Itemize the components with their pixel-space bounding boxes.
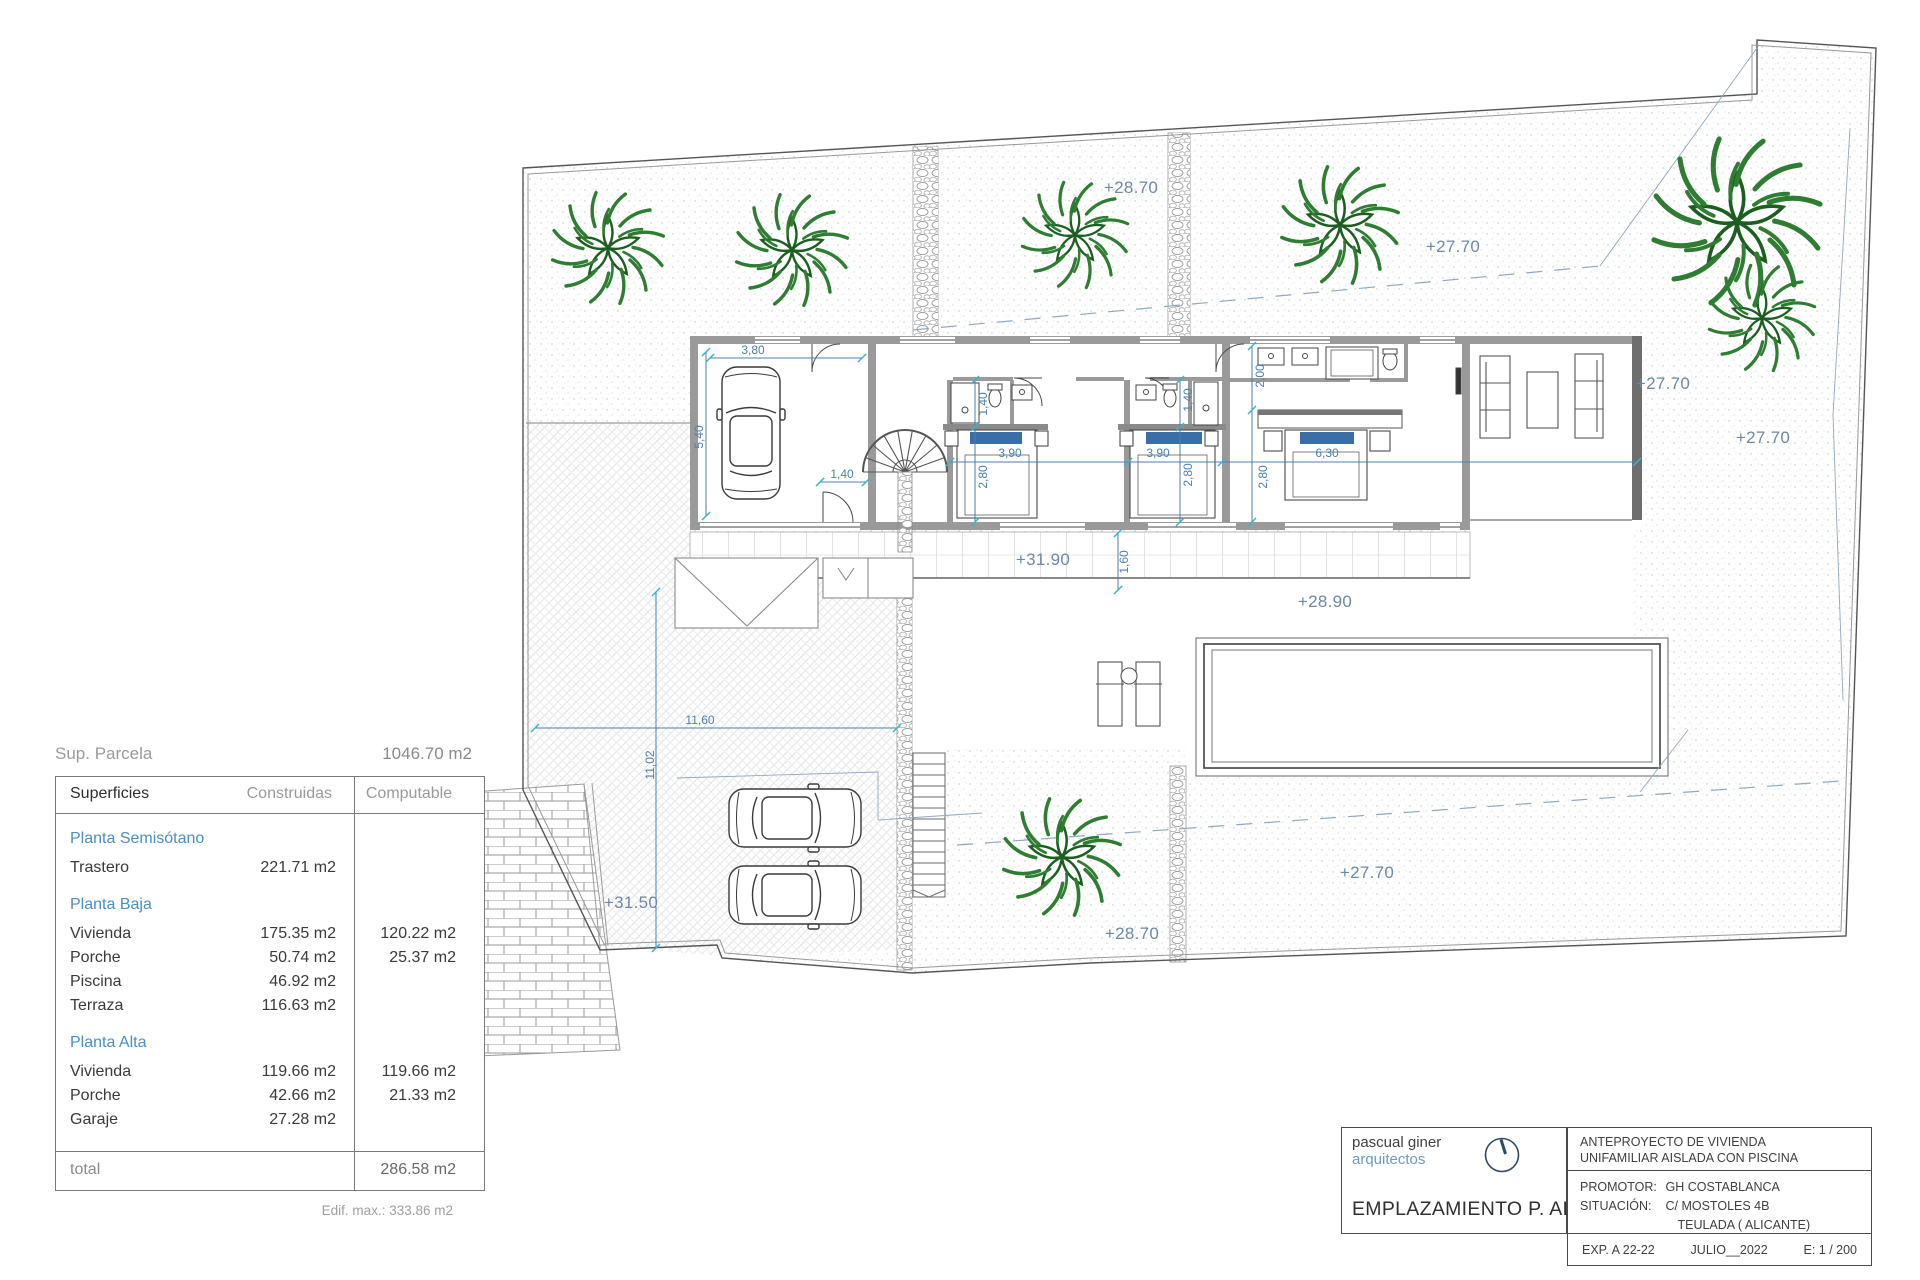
drawing-title: EMPLAZAMIENTO P. ALTA xyxy=(1352,1198,1596,1221)
table-row: Piscina46.92 m2 xyxy=(56,970,484,994)
car-symbol xyxy=(729,861,861,929)
dimension-label: 11,02 xyxy=(643,750,657,779)
surfaces-table-body: Planta SemisótanoTrastero221.71 m2Planta… xyxy=(56,814,484,1132)
table-section-title: Planta Baja xyxy=(70,894,484,916)
col-construidas: Construidas xyxy=(247,785,332,803)
row-name: Vivienda xyxy=(70,1063,131,1081)
dimension-label: 6,30 xyxy=(1315,446,1338,460)
elevation-label: +27.70 xyxy=(1736,428,1790,448)
dimension-label: 11,60 xyxy=(685,713,714,727)
firm-name-block: pascual giner arquitectos xyxy=(1352,1134,1441,1168)
row-computable: 120.22 m2 xyxy=(380,925,456,943)
north-arrow-icon xyxy=(1483,1136,1521,1174)
total-label: total xyxy=(70,1161,100,1179)
promotor-value: GH COSTABLANCA xyxy=(1665,1180,1779,1194)
surfaces-table-header: Superficies Construidas Computable xyxy=(56,777,484,814)
table-row: Porche50.74 m225.37 m2 xyxy=(56,946,484,970)
row-name: Vivienda xyxy=(70,925,131,943)
project-line2: UNIFAMILIAR AISLADA CON PISCINA xyxy=(1580,1150,1871,1166)
parcel-summary-value: 1046.70 m2 xyxy=(382,744,472,764)
expediente: EXP. A 22-22 xyxy=(1582,1243,1655,1257)
row-name: Piscina xyxy=(70,973,122,991)
firm-name: pascual giner xyxy=(1352,1134,1441,1151)
row-computable: 21.33 m2 xyxy=(389,1087,456,1105)
col-superficies: Superficies xyxy=(70,785,149,803)
promotor-row: PROMOTOR: GH COSTABLANCA xyxy=(1580,1178,1871,1197)
sheet-date: JULIO__2022 xyxy=(1691,1243,1768,1257)
row-construidas: 119.66 m2 xyxy=(262,1063,336,1081)
dimension-label: 3,90 xyxy=(998,446,1021,460)
row-name: Porche xyxy=(70,949,121,967)
situacion-value1: C/ MOSTOLES 4B xyxy=(1665,1199,1769,1213)
parcel-summary: Sup. Parcela 1046.70 m2 xyxy=(55,744,472,764)
elevation-label: +28.70 xyxy=(1104,178,1158,198)
table-row: Terraza116.63 m2 xyxy=(56,994,484,1018)
elevation-label: +27.70 xyxy=(1636,374,1690,394)
promotor-label: PROMOTOR: xyxy=(1580,1178,1662,1197)
row-construidas: 46.92 m2 xyxy=(269,973,336,991)
dimension-label: 3,80 xyxy=(741,343,764,357)
situacion-row2: TEULADA ( ALICANTE) xyxy=(1580,1216,1871,1235)
row-construidas: 42.66 m2 xyxy=(269,1087,336,1105)
row-name: Porche xyxy=(70,1087,121,1105)
dimension-label: 2,80 xyxy=(1181,463,1195,486)
row-name: Garaje xyxy=(70,1111,118,1129)
table-section-title: Planta Semisótano xyxy=(70,828,484,850)
dimension-label: 2,80 xyxy=(976,465,990,488)
parcel-summary-label: Sup. Parcela xyxy=(55,744,152,764)
dimension-label: 3,90 xyxy=(1146,446,1169,460)
project-details: PROMOTOR: GH COSTABLANCA SITUACIÓN: C/ M… xyxy=(1568,1171,1871,1234)
dimension-label: 1,40 xyxy=(830,467,853,481)
sheet-scale: E: 1 / 200 xyxy=(1803,1243,1857,1257)
table-row: Vivienda175.35 m2120.22 m2 xyxy=(56,922,484,946)
dimension-label: 1,40 xyxy=(1181,388,1195,411)
row-name: Trastero xyxy=(70,859,129,877)
total-value: 286.58 m2 xyxy=(380,1161,456,1179)
table-row: Garaje27.28 m2 xyxy=(56,1108,484,1132)
situacion-value2: TEULADA ( ALICANTE) xyxy=(1677,1218,1810,1232)
situacion-label: SITUACIÓN: xyxy=(1580,1197,1662,1216)
elevation-label: +31.50 xyxy=(604,893,658,913)
firm-subtitle: arquitectos xyxy=(1352,1151,1441,1168)
titleblock-left: pascual giner arquitectos EMPLAZAMIENTO … xyxy=(1341,1127,1567,1234)
row-construidas: 175.35 m2 xyxy=(260,925,336,943)
table-section-title: Planta Alta xyxy=(70,1032,484,1054)
dimension-label: 2,80 xyxy=(1256,465,1270,488)
titleblock-right: ANTEPROYECTO DE VIVIENDA UNIFAMILIAR AIS… xyxy=(1567,1127,1872,1266)
row-construidas: 50.74 m2 xyxy=(269,949,336,967)
elevation-label: +28.70 xyxy=(1105,924,1159,944)
dimension-label: 1,60 xyxy=(1117,550,1131,573)
row-computable: 25.37 m2 xyxy=(389,949,456,967)
dimension-label: 5,40 xyxy=(692,425,706,448)
row-name: Terraza xyxy=(70,997,123,1015)
row-construidas: 27.28 m2 xyxy=(269,1111,336,1129)
table-row: Porche42.66 m221.33 m2 xyxy=(56,1084,484,1108)
dimension-label: 1,40 xyxy=(976,392,990,415)
row-construidas: 116.63 m2 xyxy=(262,997,336,1015)
car-symbol xyxy=(729,784,861,852)
col-computable: Computable xyxy=(344,785,474,803)
table-row: Vivienda119.66 m2119.66 m2 xyxy=(56,1060,484,1084)
table-row: Trastero221.71 m2 xyxy=(56,856,484,880)
situacion-row: SITUACIÓN: C/ MOSTOLES 4B xyxy=(1580,1197,1871,1216)
elevation-label: +27.70 xyxy=(1426,237,1480,257)
surfaces-table: Superficies Construidas Computable Plant… xyxy=(55,776,485,1191)
project-description: ANTEPROYECTO DE VIVIENDA UNIFAMILIAR AIS… xyxy=(1568,1128,1871,1171)
edificability-note: Edif. max.: 333.86 m2 xyxy=(55,1203,453,1218)
row-computable: 119.66 m2 xyxy=(382,1063,456,1081)
elevation-label: +31.90 xyxy=(1016,550,1070,570)
row-construidas: 221.71 m2 xyxy=(260,859,336,877)
car-symbol xyxy=(717,367,785,499)
dimension-label: 2,00 xyxy=(1253,364,1267,387)
project-line1: ANTEPROYECTO DE VIVIENDA xyxy=(1580,1134,1871,1150)
elevation-label: +28.90 xyxy=(1298,592,1352,612)
elevation-label: +27.70 xyxy=(1340,863,1394,883)
total-row: total 286.58 m2 xyxy=(56,1151,484,1190)
site-plan-sheet: +28.70+27.70+27.70+27.70+31.90+28.90+31.… xyxy=(0,0,1920,1280)
sheet-meta-row: EXP. A 22-22 JULIO__2022 E: 1 / 200 xyxy=(1568,1234,1871,1265)
